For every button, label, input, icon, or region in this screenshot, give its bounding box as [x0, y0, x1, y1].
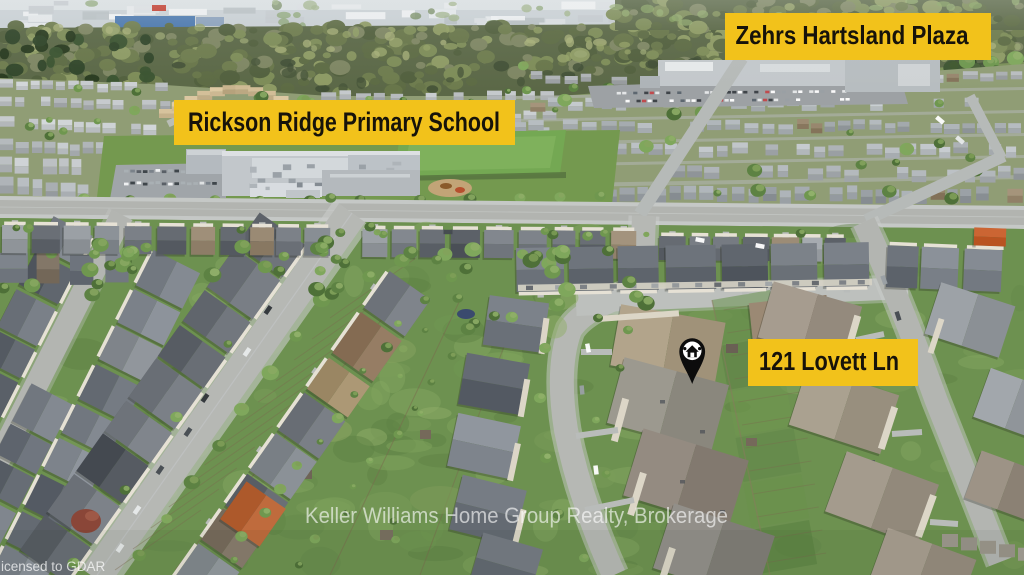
- svg-text:icensed to GDAR: icensed to GDAR: [1, 559, 106, 574]
- svg-text:Zehrs Hartsland Plaza: Zehrs Hartsland Plaza: [736, 20, 969, 50]
- svg-text:121 Lovett Ln: 121 Lovett Ln: [759, 348, 899, 376]
- svg-text:Keller Williams Home Group Rea: Keller Williams Home Group Realty, Broke…: [305, 503, 728, 528]
- svg-text:Rickson Ridge Primary School: Rickson Ridge Primary School: [188, 107, 500, 137]
